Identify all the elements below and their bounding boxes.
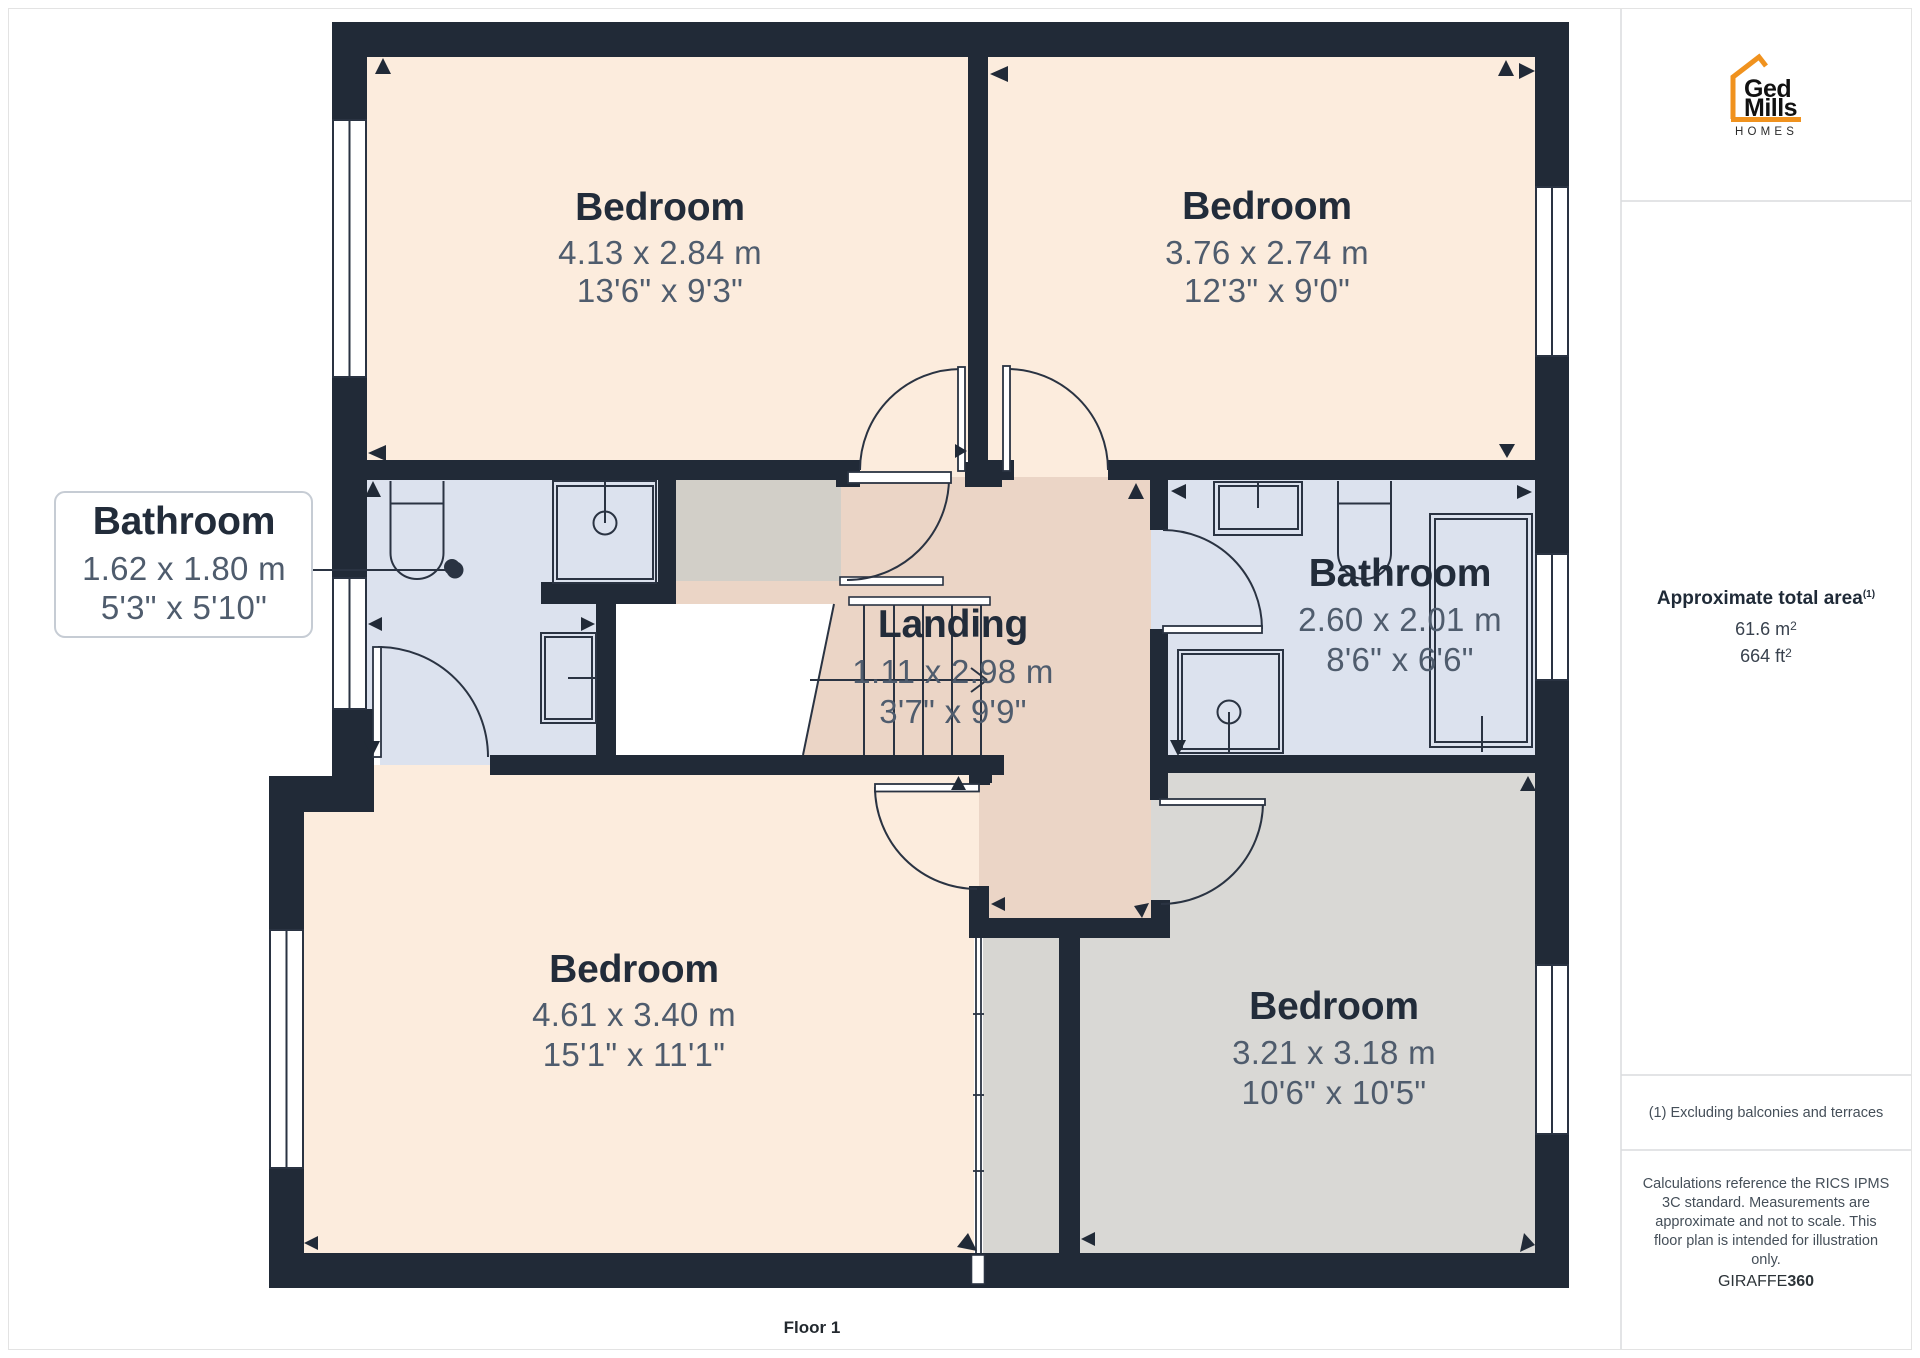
svg-text:15'1" x 11'1": 15'1" x 11'1"	[543, 1036, 725, 1073]
svg-text:5'3" x 5'10": 5'3" x 5'10"	[101, 589, 267, 626]
svg-text:GIRAFFE360: GIRAFFE360	[1718, 1273, 1814, 1290]
svg-text:8'6" x 6'6": 8'6" x 6'6"	[1326, 641, 1474, 678]
svg-text:Bedroom: Bedroom	[575, 186, 745, 229]
svg-text:3.21 x 3.18 m: 3.21 x 3.18 m	[1232, 1034, 1436, 1071]
svg-text:10'6" x 10'5": 10'6" x 10'5"	[1242, 1074, 1427, 1111]
svg-text:(1) Excluding balconies and te: (1) Excluding balconies and terraces	[1649, 1105, 1884, 1121]
svg-text:Bedroom: Bedroom	[1249, 985, 1419, 1028]
svg-text:Approximate total area(1): Approximate total area(1)	[1657, 588, 1875, 609]
svg-text:Bathroom: Bathroom	[1309, 552, 1492, 595]
svg-text:only.: only.	[1751, 1252, 1781, 1268]
svg-text:1.62 x 1.80 m: 1.62 x 1.80 m	[82, 550, 286, 587]
svg-text:Mills: Mills	[1744, 94, 1797, 122]
svg-text:Bedroom: Bedroom	[549, 948, 719, 991]
svg-text:4.13 x 2.84 m: 4.13 x 2.84 m	[558, 234, 762, 271]
svg-text:HOMES: HOMES	[1735, 126, 1798, 138]
svg-text:Bedroom: Bedroom	[1182, 185, 1352, 228]
svg-text:4.61 x 3.40 m: 4.61 x 3.40 m	[532, 996, 736, 1033]
svg-text:61.6 m2: 61.6 m2	[1735, 619, 1797, 639]
svg-text:3.76 x 2.74 m: 3.76 x 2.74 m	[1165, 234, 1369, 271]
svg-text:664 ft2: 664 ft2	[1740, 646, 1792, 666]
svg-text:2.60 x 2.01 m: 2.60 x 2.01 m	[1298, 601, 1502, 638]
svg-text:floor plan is intended for ill: floor plan is intended for illustration	[1654, 1233, 1878, 1249]
svg-text:1.11 x 2.98 m: 1.11 x 2.98 m	[852, 653, 1053, 690]
svg-text:Landing: Landing	[878, 603, 1028, 646]
svg-text:3'7" x 9'9": 3'7" x 9'9"	[879, 693, 1027, 730]
svg-text:Calculations reference the RIC: Calculations reference the RICS IPMS	[1643, 1176, 1890, 1192]
svg-text:Floor 1: Floor 1	[784, 1318, 841, 1337]
svg-text:12'3" x 9'0": 12'3" x 9'0"	[1184, 272, 1350, 309]
svg-text:3C standard. Measurements are: 3C standard. Measurements are	[1662, 1195, 1870, 1211]
svg-text:13'6" x 9'3": 13'6" x 9'3"	[577, 272, 743, 309]
svg-text:Bathroom: Bathroom	[93, 500, 276, 543]
svg-text:approximate and not to scale.: approximate and not to scale. This	[1655, 1214, 1876, 1230]
